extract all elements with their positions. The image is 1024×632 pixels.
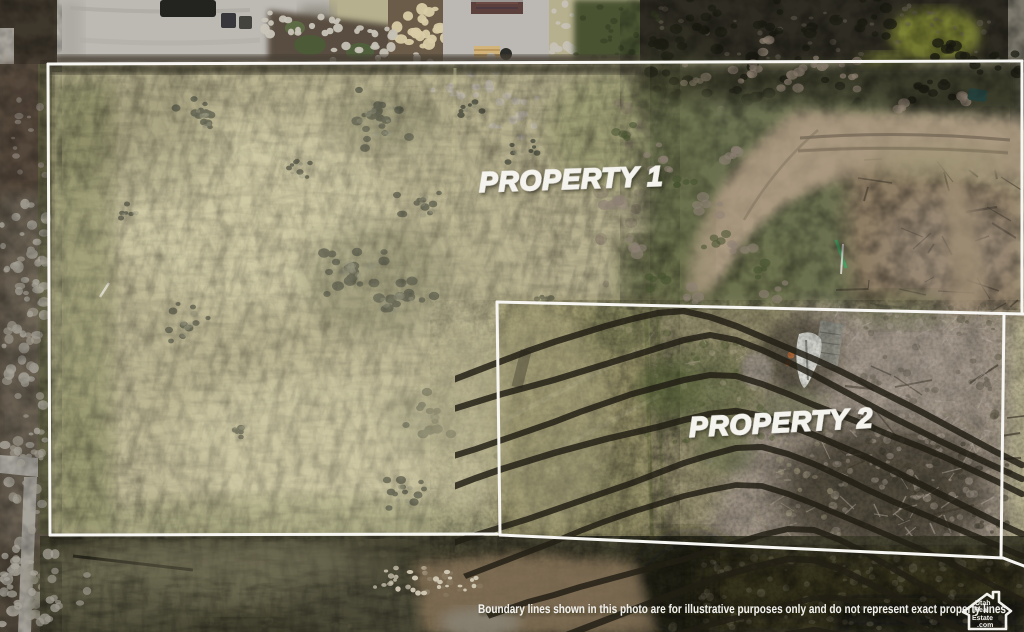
svg-text:Utah: Utah bbox=[975, 599, 991, 607]
svg-text:Estate: Estate bbox=[972, 615, 993, 622]
svg-text:Real: Real bbox=[974, 606, 989, 614]
svg-text:.com: .com bbox=[977, 622, 993, 629]
svg-text:PROPERTY 1: PROPERTY 1 bbox=[478, 160, 663, 197]
svg-text:Boundary lines shown in this p: Boundary lines shown in this photo are f… bbox=[478, 602, 1006, 616]
